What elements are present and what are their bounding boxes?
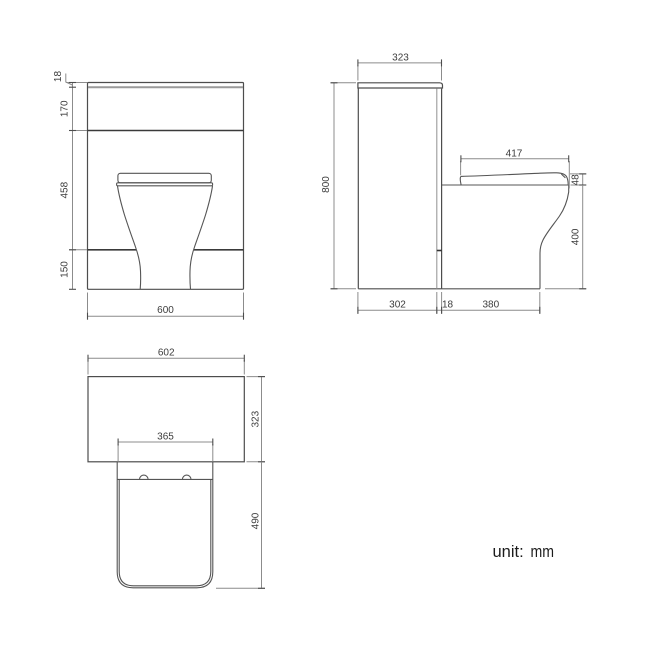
svg-text:490: 490 bbox=[251, 512, 262, 529]
svg-text:18: 18 bbox=[442, 299, 454, 310]
svg-text:602: 602 bbox=[158, 348, 175, 359]
svg-text:170: 170 bbox=[60, 100, 71, 117]
svg-text:323: 323 bbox=[251, 410, 262, 427]
svg-text:380: 380 bbox=[482, 299, 499, 310]
svg-text:400: 400 bbox=[571, 228, 582, 245]
svg-text:417: 417 bbox=[506, 148, 523, 159]
svg-text:365: 365 bbox=[157, 431, 174, 442]
svg-text:18: 18 bbox=[53, 71, 64, 83]
svg-text:458: 458 bbox=[60, 181, 71, 198]
svg-text:150: 150 bbox=[60, 261, 71, 278]
svg-text:800: 800 bbox=[321, 176, 332, 193]
svg-text:600: 600 bbox=[157, 305, 174, 316]
svg-text:323: 323 bbox=[392, 52, 409, 63]
svg-text:unit:: unit: bbox=[493, 543, 524, 561]
svg-text:mm: mm bbox=[531, 543, 555, 561]
svg-text:48: 48 bbox=[571, 174, 582, 186]
svg-text:302: 302 bbox=[389, 299, 406, 310]
